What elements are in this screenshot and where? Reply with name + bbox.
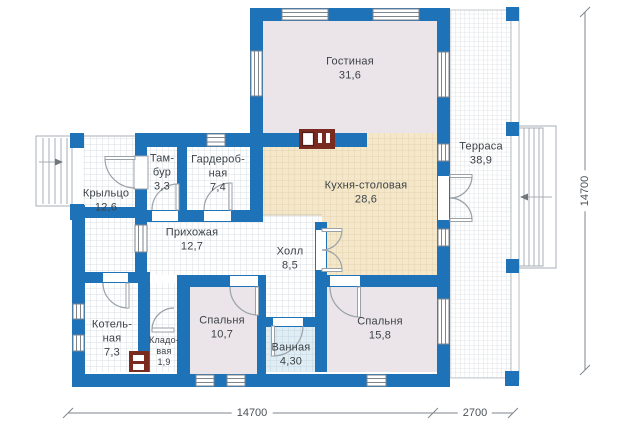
wall [72, 205, 85, 387]
window [438, 144, 449, 161]
wall [250, 8, 450, 21]
window [367, 375, 386, 386]
boiler-stove [129, 351, 149, 372]
floor-plan-graphic [0, 0, 620, 440]
wall [250, 8, 263, 222]
fireplace [299, 129, 335, 149]
terrace-post [505, 371, 519, 386]
arrow-head-icon [55, 159, 63, 166]
terrace-stairs [519, 126, 556, 268]
room-floor-porch [83, 137, 140, 207]
room-floor-bedroom2 [327, 287, 437, 372]
room-floor-terrace [450, 10, 511, 378]
wall [72, 374, 450, 387]
room-floor-kitchen-passage [367, 133, 437, 147]
floor-plan: Гостиная 31,6 Терраса 38,9 Кухня-столова… [0, 0, 620, 440]
wall [135, 133, 263, 147]
porch-post [70, 133, 84, 148]
terrace-post [506, 259, 519, 273]
window [207, 134, 225, 146]
room-floor-wardrobe [187, 147, 250, 211]
window [373, 9, 419, 20]
window [282, 9, 328, 20]
room-floor-tambour [147, 147, 177, 211]
window [135, 225, 147, 252]
window [196, 375, 214, 386]
window [438, 229, 449, 246]
terrace-post [506, 122, 519, 136]
terrace-post [506, 7, 519, 21]
window [438, 299, 449, 344]
window [73, 335, 84, 351]
room-floor-living [263, 21, 437, 133]
window [227, 375, 245, 386]
terrace-edge-strip [511, 8, 519, 380]
window [73, 304, 84, 319]
window [438, 52, 449, 97]
porch-post [70, 204, 84, 220]
wall [177, 275, 190, 374]
window [251, 51, 262, 96]
room-floor-bedroom1 [190, 287, 258, 374]
room-floor-hall [263, 215, 322, 327]
